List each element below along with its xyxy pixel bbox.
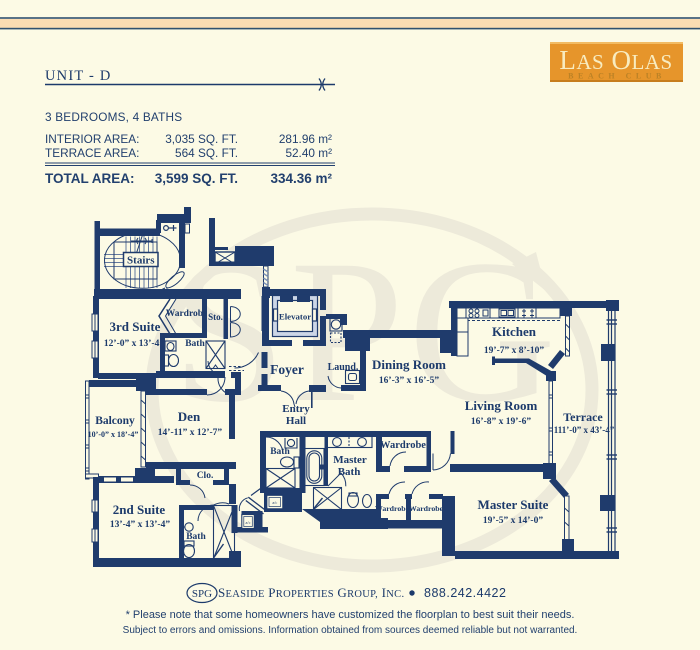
svg-text:Elevator: Elevator bbox=[279, 312, 311, 322]
svg-text:Wardrobe: Wardrobe bbox=[409, 504, 444, 513]
svg-text:TERRACE AREA:: TERRACE AREA: bbox=[45, 146, 139, 160]
svg-text:Clo.: Clo. bbox=[197, 471, 214, 481]
svg-text:SPG: SPG bbox=[192, 588, 212, 600]
svg-text:Entry: Entry bbox=[282, 403, 310, 415]
svg-text:334.36 m²: 334.36 m² bbox=[270, 171, 332, 186]
svg-text:Laund.: Laund. bbox=[328, 362, 359, 373]
svg-text:888.242.4422: 888.242.4422 bbox=[424, 586, 506, 600]
svg-text:UNIT - D: UNIT - D bbox=[45, 68, 112, 84]
svg-text:12’-0” x 13’-4”: 12’-0” x 13’-4” bbox=[104, 339, 164, 349]
svg-text:111’-0” x 43’-4”: 111’-0” x 43’-4” bbox=[554, 425, 615, 435]
svg-text:3,035 SQ. FT.: 3,035 SQ. FT. bbox=[165, 132, 238, 146]
svg-text:3 BEDROOMS, 4 BATHS: 3 BEDROOMS, 4 BATHS bbox=[45, 110, 182, 124]
svg-text:Stairs: Stairs bbox=[127, 255, 155, 267]
svg-text:10’-0” x 18’-4”: 10’-0” x 18’-4” bbox=[88, 430, 139, 439]
svg-text:3rd Suite: 3rd Suite bbox=[110, 319, 161, 334]
svg-text:Hall: Hall bbox=[286, 415, 306, 427]
svg-text:a/c: a/c bbox=[246, 520, 251, 525]
svg-text:a/c: a/c bbox=[272, 500, 277, 505]
svg-text:Master Suite: Master Suite bbox=[478, 497, 549, 512]
svg-text:Bath: Bath bbox=[186, 532, 206, 542]
svg-text:LAS OLAS: LAS OLAS bbox=[559, 45, 672, 75]
svg-text:TOTAL AREA:: TOTAL AREA: bbox=[45, 171, 135, 186]
svg-text:Balcony: Balcony bbox=[95, 415, 135, 427]
svg-text:3,599 SQ. FT.: 3,599 SQ. FT. bbox=[155, 171, 238, 186]
svg-text:Den: Den bbox=[178, 409, 201, 424]
svg-text:52.40 m²: 52.40 m² bbox=[285, 146, 332, 160]
svg-text:Dining Room: Dining Room bbox=[372, 357, 446, 372]
svg-text:Terrace: Terrace bbox=[563, 410, 603, 424]
svg-text:INTERIOR AREA:: INTERIOR AREA: bbox=[45, 132, 139, 146]
svg-text:16’-3” x 16’-5”: 16’-3” x 16’-5” bbox=[379, 376, 439, 386]
svg-text:Foyer: Foyer bbox=[270, 362, 304, 377]
svg-text:16’-8” x 19’-6”: 16’-8” x 19’-6” bbox=[471, 417, 531, 427]
svg-text:19’-5” x 14’-0”: 19’-5” x 14’-0” bbox=[483, 516, 543, 526]
svg-text:Bath: Bath bbox=[270, 447, 290, 457]
svg-text:19’-7” x 8’-10”: 19’-7” x 8’-10” bbox=[484, 346, 544, 356]
svg-text:281.96 m²: 281.96 m² bbox=[279, 132, 332, 146]
svg-text:2nd Suite: 2nd Suite bbox=[113, 502, 166, 517]
svg-text:14’-11” x 12’-7”: 14’-11” x 12’-7” bbox=[158, 428, 223, 438]
svg-text:564 SQ. FT.: 564 SQ. FT. bbox=[175, 146, 238, 160]
svg-text:* Please note that some homeow: * Please note that some homeowners have … bbox=[126, 609, 575, 621]
svg-text:Kitchen: Kitchen bbox=[492, 324, 537, 339]
svg-text:Subject to errors and omission: Subject to errors and omissions. Informa… bbox=[123, 625, 578, 636]
svg-text:Bath: Bath bbox=[185, 339, 205, 349]
svg-text:Wardrobe: Wardrobe bbox=[380, 440, 426, 451]
svg-text:Wardrobe: Wardrobe bbox=[166, 309, 208, 319]
svg-text:Master: Master bbox=[333, 454, 367, 466]
svg-text:Sto.: Sto. bbox=[208, 312, 223, 322]
svg-text:BEACH CLUB: BEACH CLUB bbox=[568, 72, 666, 81]
svg-text:13’-4” x 13’-4”: 13’-4” x 13’-4” bbox=[110, 520, 170, 530]
svg-text:Bath: Bath bbox=[338, 466, 361, 478]
svg-text:Living Room: Living Room bbox=[465, 398, 538, 413]
